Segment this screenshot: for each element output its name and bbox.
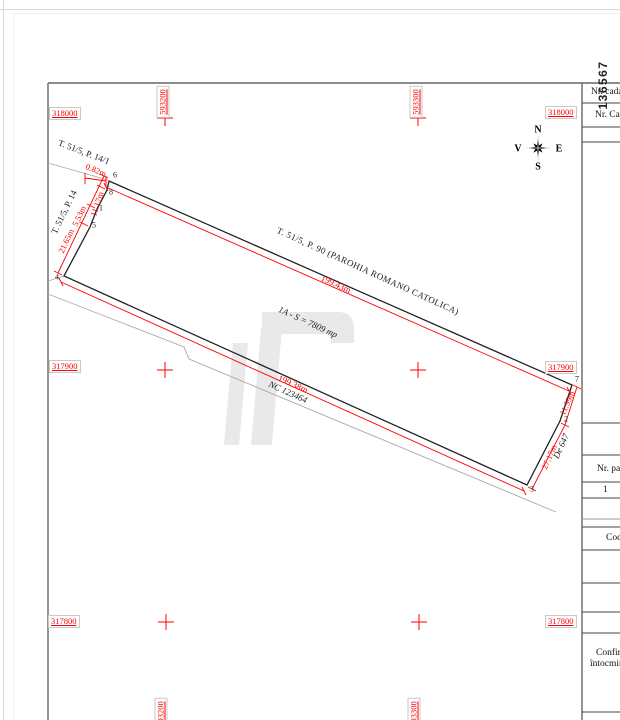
sheet-frame xyxy=(48,83,620,720)
neighbor-boundaries xyxy=(48,163,556,512)
northing-label-right-317800: 317800 xyxy=(545,615,577,628)
northing-label-left-317800: 317800 xyxy=(48,615,80,628)
sheet-number-stamp: 136567 xyxy=(596,60,610,109)
point-label-6: 6 xyxy=(113,171,117,180)
point-label-8: 8 xyxy=(109,188,113,197)
point-label-2: 2 xyxy=(564,415,568,424)
info-row-confirm-line2: întocmir xyxy=(590,659,620,669)
plan-drawing xyxy=(0,0,620,720)
info-row-carte: Nr. Carte xyxy=(595,110,620,120)
point-label-5: 5 xyxy=(92,221,96,230)
point-label-1: 1 xyxy=(99,204,103,213)
point-label-4: 4 xyxy=(55,273,59,282)
info-row-confirm-line1: Confir xyxy=(596,648,620,658)
easting-label-bottom-593200: 593200 xyxy=(155,698,168,720)
cadastral-plan-viewer: 318000 318000 317900 317900 317800 31780… xyxy=(0,0,620,720)
compass-east-label: E xyxy=(556,144,563,155)
point-label-3: 3 xyxy=(530,485,534,494)
info-row-parcela: Nr. par xyxy=(597,464,620,474)
northing-label-right-317900: 317900 xyxy=(545,361,577,374)
northing-label-left-317900: 317900 xyxy=(49,360,81,373)
viewer-chrome xyxy=(0,0,620,720)
easting-label-bottom-593300: 593300 xyxy=(408,698,421,720)
northing-label-right-318000: 318000 xyxy=(545,106,577,119)
easting-label-top-593300: 593300 xyxy=(410,86,423,118)
easting-label-top-593200: 593200 xyxy=(157,86,170,118)
compass-north-label: N xyxy=(534,125,541,136)
info-table-lines xyxy=(582,103,620,712)
info-row-cod: Cod xyxy=(606,533,620,543)
info-row-parcela-value: 1 xyxy=(603,485,608,495)
compass-west-label: V xyxy=(514,144,521,155)
compass-south-label: S xyxy=(535,162,541,173)
compass-rose xyxy=(526,136,550,160)
point-label-7: 7 xyxy=(575,375,579,384)
northing-label-left-318000: 318000 xyxy=(49,107,81,120)
grid-crosses xyxy=(157,110,427,630)
info-row-cadastral: Nr. cadas xyxy=(591,87,620,97)
